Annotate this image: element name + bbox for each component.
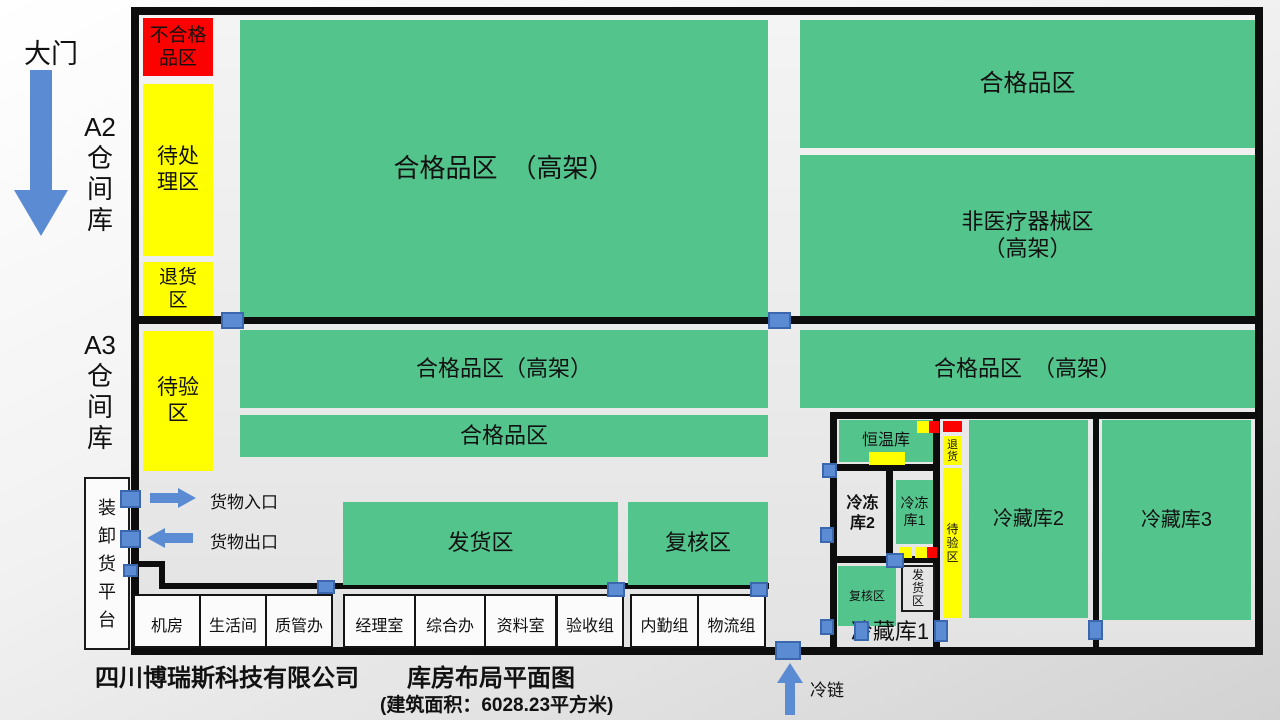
office-living-room: 生活间 [199,596,265,646]
connector-cold-divider-base [1088,620,1103,640]
zone-qualified-rack-a3-left: 合格品区（高架） [240,330,768,408]
goods-in-label: 货物入口 [210,488,278,513]
strip-red-marker [943,421,962,432]
connector-corridor-2 [607,582,625,597]
consttemp-yellow-bar [869,452,905,465]
office-internal-group: 内勤组 [632,596,697,646]
gate-label: 大门 [24,32,78,71]
connector-divider-right [768,312,791,329]
consttemp-red-marker [929,421,939,433]
goods-in-arrow-icon [150,488,196,508]
connector-bottom-coldchain [775,641,801,660]
freezer-red-marker [927,547,937,558]
freezer-yellow-marker-2 [915,547,927,558]
zone-unqualified: 不合格 品区 [143,18,213,76]
office-group-4: 内勤组 物流组 [630,594,766,648]
zone-cold3: 冷藏库3 [1102,420,1251,620]
cold-chain-up-arrow-icon [777,663,803,715]
zone-pending: 待处 理区 [143,84,213,256]
zone-shipping-main: 发货区 [343,502,618,585]
strip-return: 退 货 [943,436,962,465]
office-machine-room: 机房 [135,596,199,646]
page-subtitle: (建筑面积：6028.23平方米) [380,690,613,717]
cold-consttemp-bottom-wall [837,464,933,471]
connector-freezer-junction [886,553,904,568]
page-title: 四川博瑞斯科技有限公司 库房布局平面图 [95,658,575,693]
connector-goods-out [120,530,141,548]
zone-review-main: 复核区 [628,502,768,585]
connector-corridor-3 [750,582,768,597]
connector-left-small [123,564,138,577]
connector-goods-in [120,490,141,508]
connector-cold-left-top [822,463,837,478]
cold-freezer2-right-wall [886,464,893,563]
gate-down-arrow-icon [12,70,70,238]
zone-returns: 退货 区 [143,262,213,316]
goods-out-arrow-icon [147,528,193,548]
consttemp-yellow-marker [917,421,929,433]
office-group-1: 机房 生活间 质管办 [133,594,333,648]
connector-cold-bottom-2 [934,620,948,642]
zone-freezer1: 冷冻 库1 [896,480,933,544]
zone-shipping-cold: 发 货 区 [901,565,935,612]
connector-divider-left [221,312,244,329]
a3-warehouse-label: A3 仓 间 库 [80,330,120,454]
connector-cold-bottom-1 [854,621,869,641]
zone-inspection: 待验 区 [143,331,213,471]
goods-out-label: 货物出口 [210,528,278,553]
zone-cold2: 冷藏库2 [969,420,1088,618]
zone-qualified-rack-a3-right: 合格品区 （高架） [800,330,1255,408]
connector-cold-left-bottom [820,619,834,635]
cold-freezer-right-wall [933,419,940,647]
zone-freezer2: 冷冻 库2 [839,471,886,556]
office-archives-room: 资料室 [484,596,555,646]
office-manager-room: 经理室 [345,596,414,646]
connector-corridor-1 [317,580,335,594]
a2-a3-divider-wall [133,316,1257,324]
office-group-2: 经理室 综合办 资料室 [343,594,557,648]
a2-warehouse-label: A2 仓 间 库 [80,112,120,236]
cold-chain-label: 冷链 [810,676,844,701]
office-general-office: 综合办 [414,596,485,646]
zone-qualified-right-top: 合格品区 [800,20,1255,148]
zone-non-medical: 非医疗器械区 （高架） [800,155,1255,316]
zone-qualified-rack-a2: 合格品区 （高架） [240,20,768,317]
strip-inspection: 待 验 区 [943,468,962,618]
cold-2-3-divider-wall [1093,419,1099,647]
connector-cold-left-mid [820,527,834,543]
zone-qualified-a3-left: 合格品区 [240,415,768,457]
office-group-3: 验收组 [556,594,624,648]
office-logistics-group: 物流组 [697,596,764,646]
office-quality-office: 质管办 [265,596,331,646]
office-acceptance-group: 验收组 [558,596,622,646]
